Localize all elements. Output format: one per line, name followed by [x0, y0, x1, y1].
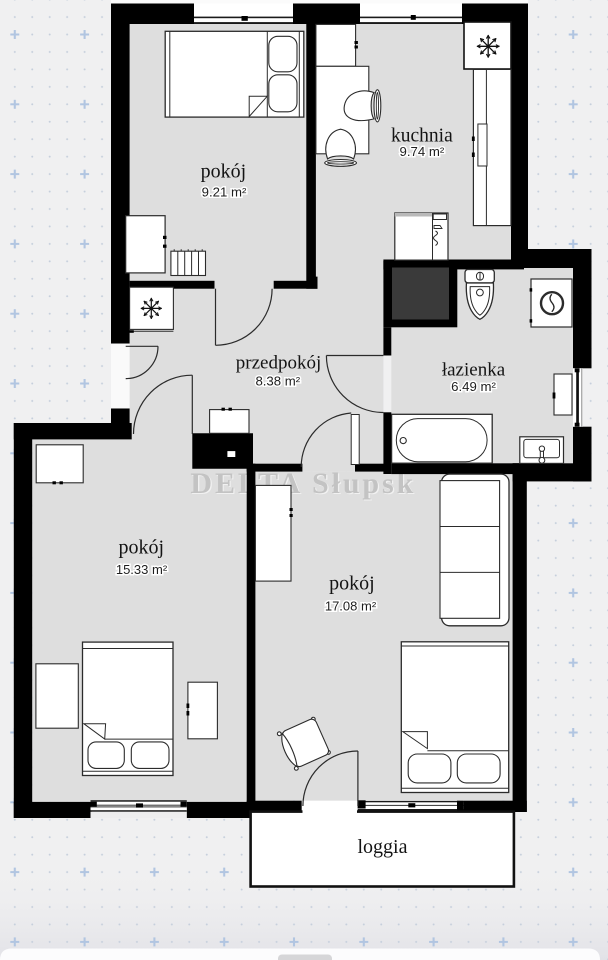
svg-text:6.49 m²: 6.49 m² [451, 379, 496, 394]
svg-text:9.74 m²: 9.74 m² [400, 144, 445, 159]
svg-text:17.08 m²: 17.08 m² [325, 599, 377, 614]
svg-text:DELTA Słupsk: DELTA Słupsk [190, 467, 416, 500]
svg-text:łazienka: łazienka [442, 360, 506, 381]
svg-text:przedpokój: przedpokój [236, 353, 321, 374]
svg-text:loggia: loggia [358, 836, 408, 858]
svg-text:8.38 m²: 8.38 m² [255, 374, 300, 389]
svg-text:pokój: pokój [329, 573, 375, 595]
svg-text:15.33 m²: 15.33 m² [116, 562, 168, 577]
svg-text:pokój: pokój [119, 537, 165, 559]
svg-text:pokój: pokój [201, 160, 247, 182]
svg-text:9.21 m²: 9.21 m² [202, 185, 247, 200]
